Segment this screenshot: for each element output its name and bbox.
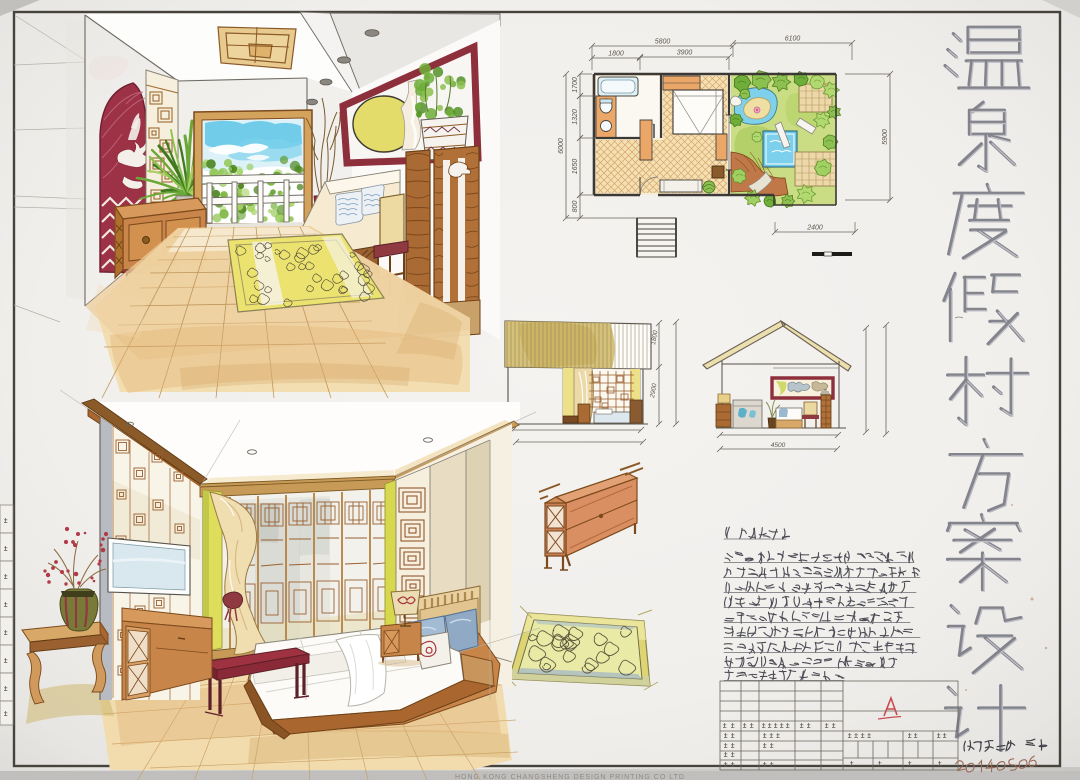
svg-text:1700: 1700 xyxy=(572,77,579,93)
svg-text:HONG KONG CHANGSHENG DESIGN PR: HONG KONG CHANGSHENG DESIGN PRINTING CO … xyxy=(455,774,685,780)
svg-text:1320: 1320 xyxy=(572,109,579,125)
svg-text:6100: 6100 xyxy=(785,36,801,43)
svg-text:2400: 2400 xyxy=(806,225,823,232)
svg-text:800: 800 xyxy=(572,201,579,213)
svg-text:1650: 1650 xyxy=(572,159,579,175)
svg-text:5900: 5900 xyxy=(882,129,889,145)
svg-text:4500: 4500 xyxy=(771,442,786,449)
svg-text:6000: 6000 xyxy=(558,138,565,154)
svg-text:1800: 1800 xyxy=(608,51,624,58)
svg-text:3900: 3900 xyxy=(677,50,693,57)
svg-text:5800: 5800 xyxy=(655,39,671,46)
